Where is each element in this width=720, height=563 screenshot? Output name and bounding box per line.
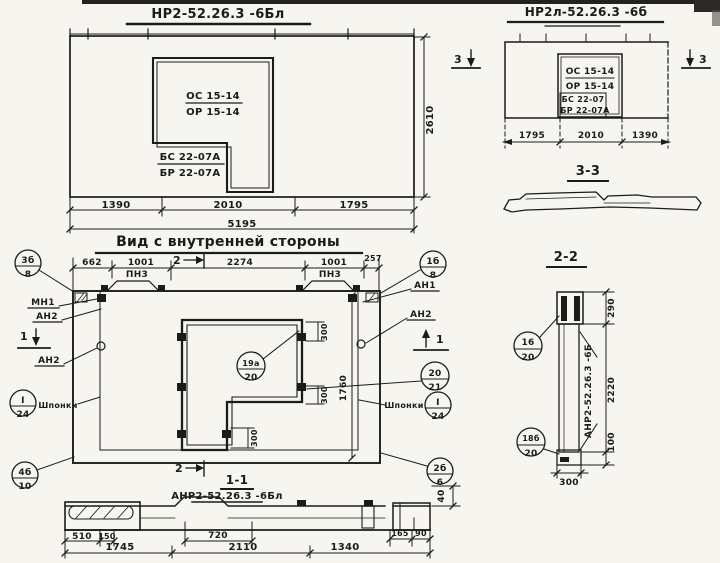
dim-2274: 2274 (227, 258, 253, 268)
elevation-hp2l: НР2л-52.26.3 -6б 3 3 ОС 15-14 ОР (452, 5, 710, 148)
callout-num: 4б (18, 467, 31, 478)
keys-label: Шпонки (384, 401, 423, 410)
section-mark-3-left: 3 (452, 50, 480, 68)
mark-2-label: 2 (173, 254, 181, 267)
callout-num: 19а (242, 359, 259, 368)
dim-1001-left: 1001 (128, 258, 154, 268)
callout-num: 2б (433, 463, 446, 474)
label-text: АН2 (410, 310, 432, 320)
mark-2-label: 2 (175, 462, 183, 475)
label-text: АН1 (414, 281, 436, 291)
dim-1390: 1390 (101, 200, 130, 211)
main-view-title: Вид с внутренней стороны (116, 234, 340, 250)
dim-2010: 2010 (578, 131, 604, 141)
callout-num: 3б (21, 255, 34, 266)
panel-outline (70, 36, 414, 197)
callout-den: 20 (524, 449, 537, 459)
callout-den: 20 (521, 353, 534, 363)
mark-3-label: 3 (699, 53, 707, 66)
dim-1001-right: 1001 (321, 258, 347, 268)
callout-keys-right: Шпонки I 24 (359, 392, 451, 422)
main-view: Вид с внутренней стороны 662 1001 2274 1… (10, 234, 453, 492)
dim-2610: 2610 (425, 105, 436, 134)
top-ticks (520, 34, 650, 42)
dim-150: 150 (98, 532, 116, 541)
callout-num: I (436, 398, 440, 408)
section-2-2: 2-2 АНР2-52.26.3 -6Б 290 2220 100 (514, 250, 617, 488)
dim-5195: 5195 (227, 219, 256, 230)
label-text: МН1 (31, 298, 55, 308)
callout-bottom-right: 2б 6 (381, 453, 453, 488)
dim-1795: 1795 (519, 131, 545, 141)
corner-plates (75, 293, 378, 302)
section-mark-3-right: 3 (682, 50, 710, 68)
section-3-3-title: 3-3 (576, 164, 600, 179)
callout-den: 24 (16, 410, 29, 420)
callout-18b-20: 18б 20 (517, 428, 559, 459)
embed-label: ПН3 (126, 270, 148, 280)
callout-den: 8 (430, 271, 437, 281)
opening-anchor-plates (177, 333, 306, 438)
callout-den: 8 (25, 270, 32, 280)
opening-outline (182, 320, 302, 450)
panel-mark-top: БС 22-07А (160, 152, 221, 163)
profile-shape (504, 192, 701, 212)
dim-1795: 1795 (339, 200, 368, 211)
elevation-hp2-title: НР2-52.26.3 -6Бл (151, 7, 284, 22)
mark-3-label: 3 (454, 53, 462, 66)
callout-num: 18б (522, 433, 540, 443)
dim-2010: 2010 (213, 200, 242, 211)
callout-den: 24 (431, 412, 444, 422)
label-text: АН2 (38, 356, 60, 366)
section-2-2-marking: АНР2-52.26.3 -6Б (584, 344, 594, 438)
mark-1-label: 1 (436, 333, 444, 346)
panel-mark-bottom: БР 22-07А (560, 106, 610, 115)
dim-300: 300 (320, 386, 329, 404)
dim-1745: 1745 (105, 542, 134, 553)
label-an2-right: АН2 (357, 310, 435, 348)
callout-num: 20 (428, 369, 441, 379)
callout-top-left: 3б 8 (15, 250, 74, 292)
dim-90: 90 (415, 529, 427, 538)
blueprint-sheet: НР2-52.26.3 -6Бл ОС 15-14 ОР 15-14 БС 22… (0, 0, 720, 563)
dim-300: 300 (250, 429, 259, 447)
section-1-1: 1-1 АНР2-52.26.3 -6Бл (62, 473, 460, 558)
section-mark-1-right: 1 (414, 329, 448, 350)
section-mark-1-left: 1 (18, 329, 50, 348)
opening-mark-bottom: ОР 15-14 (186, 107, 240, 118)
mark-1-label: 1 (20, 330, 28, 343)
panel-mark-top: БС 22-07 (562, 95, 605, 104)
dim-2110: 2110 (228, 542, 257, 553)
dim-257: 257 (364, 254, 382, 263)
callout-num: I (21, 396, 25, 406)
dim-290: 290 (607, 298, 617, 318)
opening-mark-top: ОС 15-14 (186, 91, 240, 102)
dim-1340: 1340 (330, 542, 359, 553)
callout-keys-left: I 24 Шпонки (10, 390, 100, 420)
keys-label: Шпонки (38, 401, 77, 410)
anchor-circle (97, 342, 105, 350)
callout-den: 10 (18, 482, 31, 492)
dim-165: 165 (391, 529, 409, 538)
callout-bottom-left: 4б 10 (12, 457, 74, 492)
label-text: АН2 (36, 312, 58, 322)
label-an2-mid-left: АН2 (35, 342, 105, 366)
dim-510: 510 (72, 532, 92, 542)
panel-mark-bottom: БР 22-07А (160, 168, 221, 179)
callout-19a-20: 19а 20 (237, 331, 299, 383)
callout-16-20: 16 20 (514, 316, 559, 363)
dim-100: 100 (607, 432, 617, 452)
dim-2220: 2220 (607, 377, 617, 403)
dim-40: 40 (437, 489, 447, 502)
dim-720: 720 (208, 531, 228, 541)
callout-num: 16 (521, 338, 534, 348)
embed-label: ПН3 (319, 270, 341, 280)
dim-662: 662 (82, 258, 102, 268)
section-2-2-title: 2-2 (554, 250, 578, 265)
dim-1390: 1390 (632, 131, 658, 141)
opening-mark-bottom: ОР 15-14 (566, 82, 615, 92)
dim-1760: 1760 (339, 375, 349, 401)
elevation-hp2: НР2-52.26.3 -6Бл ОС 15-14 ОР 15-14 БС 22… (67, 7, 436, 233)
opening-mark-top: ОС 15-14 (566, 67, 615, 77)
callout-den: 20 (244, 373, 257, 383)
elevation-hp2l-title: НР2л-52.26.3 -6б (525, 5, 648, 19)
label-an2-top-left: АН2 (33, 309, 101, 322)
section-3-3: 3-3 (504, 164, 701, 212)
callout-num: 1б (426, 256, 439, 267)
dim-300-width: 300 (559, 478, 579, 488)
embed-pn3-right: ПН3 (296, 270, 360, 291)
section-1-1-title: 1-1 (226, 473, 249, 487)
dim-300: 300 (320, 323, 329, 341)
section-mark-2-top: 2 (173, 253, 204, 268)
panel-section-bar (559, 324, 579, 452)
embed-pn3-left: ПН3 (101, 270, 165, 291)
blueprint-canvas: НР2-52.26.3 -6Бл ОС 15-14 ОР 15-14 БС 22… (0, 0, 720, 563)
